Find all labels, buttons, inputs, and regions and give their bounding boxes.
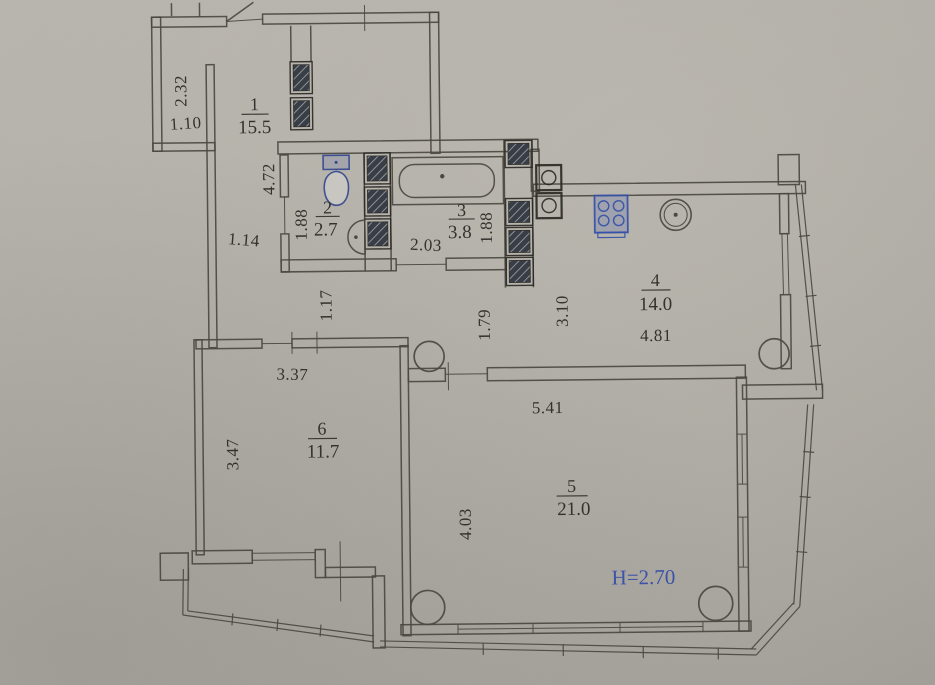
kitchen-sink-icon [660,199,691,230]
vent-shaft-block [364,187,390,216]
dim-tick [340,541,341,601]
room-6-area: 11.7 [307,441,340,462]
floor-plan-photo: 2.32 1.10 1 15.5 4.72 1.14 1.88 2 2.7 3 … [0,0,935,685]
vent-shaft-block [506,257,533,285]
vent-shaft-block [505,140,532,167]
room-2-area: 2.7 [314,219,338,240]
room-4-area: 14.0 [639,294,672,315]
room-3-number: 3 [457,200,466,220]
room-5-number: 5 [567,476,576,496]
dim-kitchen-width: 4.81 [640,326,672,345]
dim-bath-depth: 1.88 [477,212,496,244]
dim-hall-lower: 1.17 [316,289,335,321]
room-2-number: 2 [323,197,332,217]
dim-wc-depth: 1.88 [292,209,311,241]
dim-corridor-width: 1.14 [227,229,260,250]
window-glass [743,517,744,567]
vent-shaft-block [290,98,312,130]
room-4-number: 4 [651,270,660,290]
dim-hall-length: 4.72 [259,163,278,195]
dim-entry-niche-width: 1.10 [169,113,202,134]
window-glass [252,553,315,554]
vent-shaft-block [364,153,390,184]
window-glass [252,560,315,561]
dim-kitchen-depth: 3.10 [553,295,572,327]
window-glass [742,434,743,484]
room-5-area: 21.0 [557,499,590,520]
vent-shaft-block [365,219,391,249]
dim-kitchen-passage: 1.79 [475,309,494,341]
vent-shaft-block [506,198,533,225]
dim-entry-niche-height: 2.32 [171,75,190,107]
ceiling-height-note: H=2.70 [611,565,675,590]
dim-bath-width: 2.03 [410,235,443,255]
door-threshold [396,264,446,265]
dim-room5-width: 5.41 [532,398,564,417]
room-3-area: 3.8 [448,222,472,243]
stove-icon [594,195,627,237]
floor-plan-canvas: 2.32 1.10 1 15.5 4.72 1.14 1.88 2 2.7 3 … [0,0,935,685]
vent-shaft-block [290,62,312,94]
dim-room5-depth: 4.03 [456,508,475,540]
room-1-number: 1 [250,94,259,114]
room-6-number: 6 [317,418,326,438]
dim-room6-depth: 3.47 [223,438,242,470]
vent-shaft-block [506,227,533,255]
dim-room6-width: 3.37 [276,364,308,384]
room-1-area: 15.5 [238,117,271,138]
